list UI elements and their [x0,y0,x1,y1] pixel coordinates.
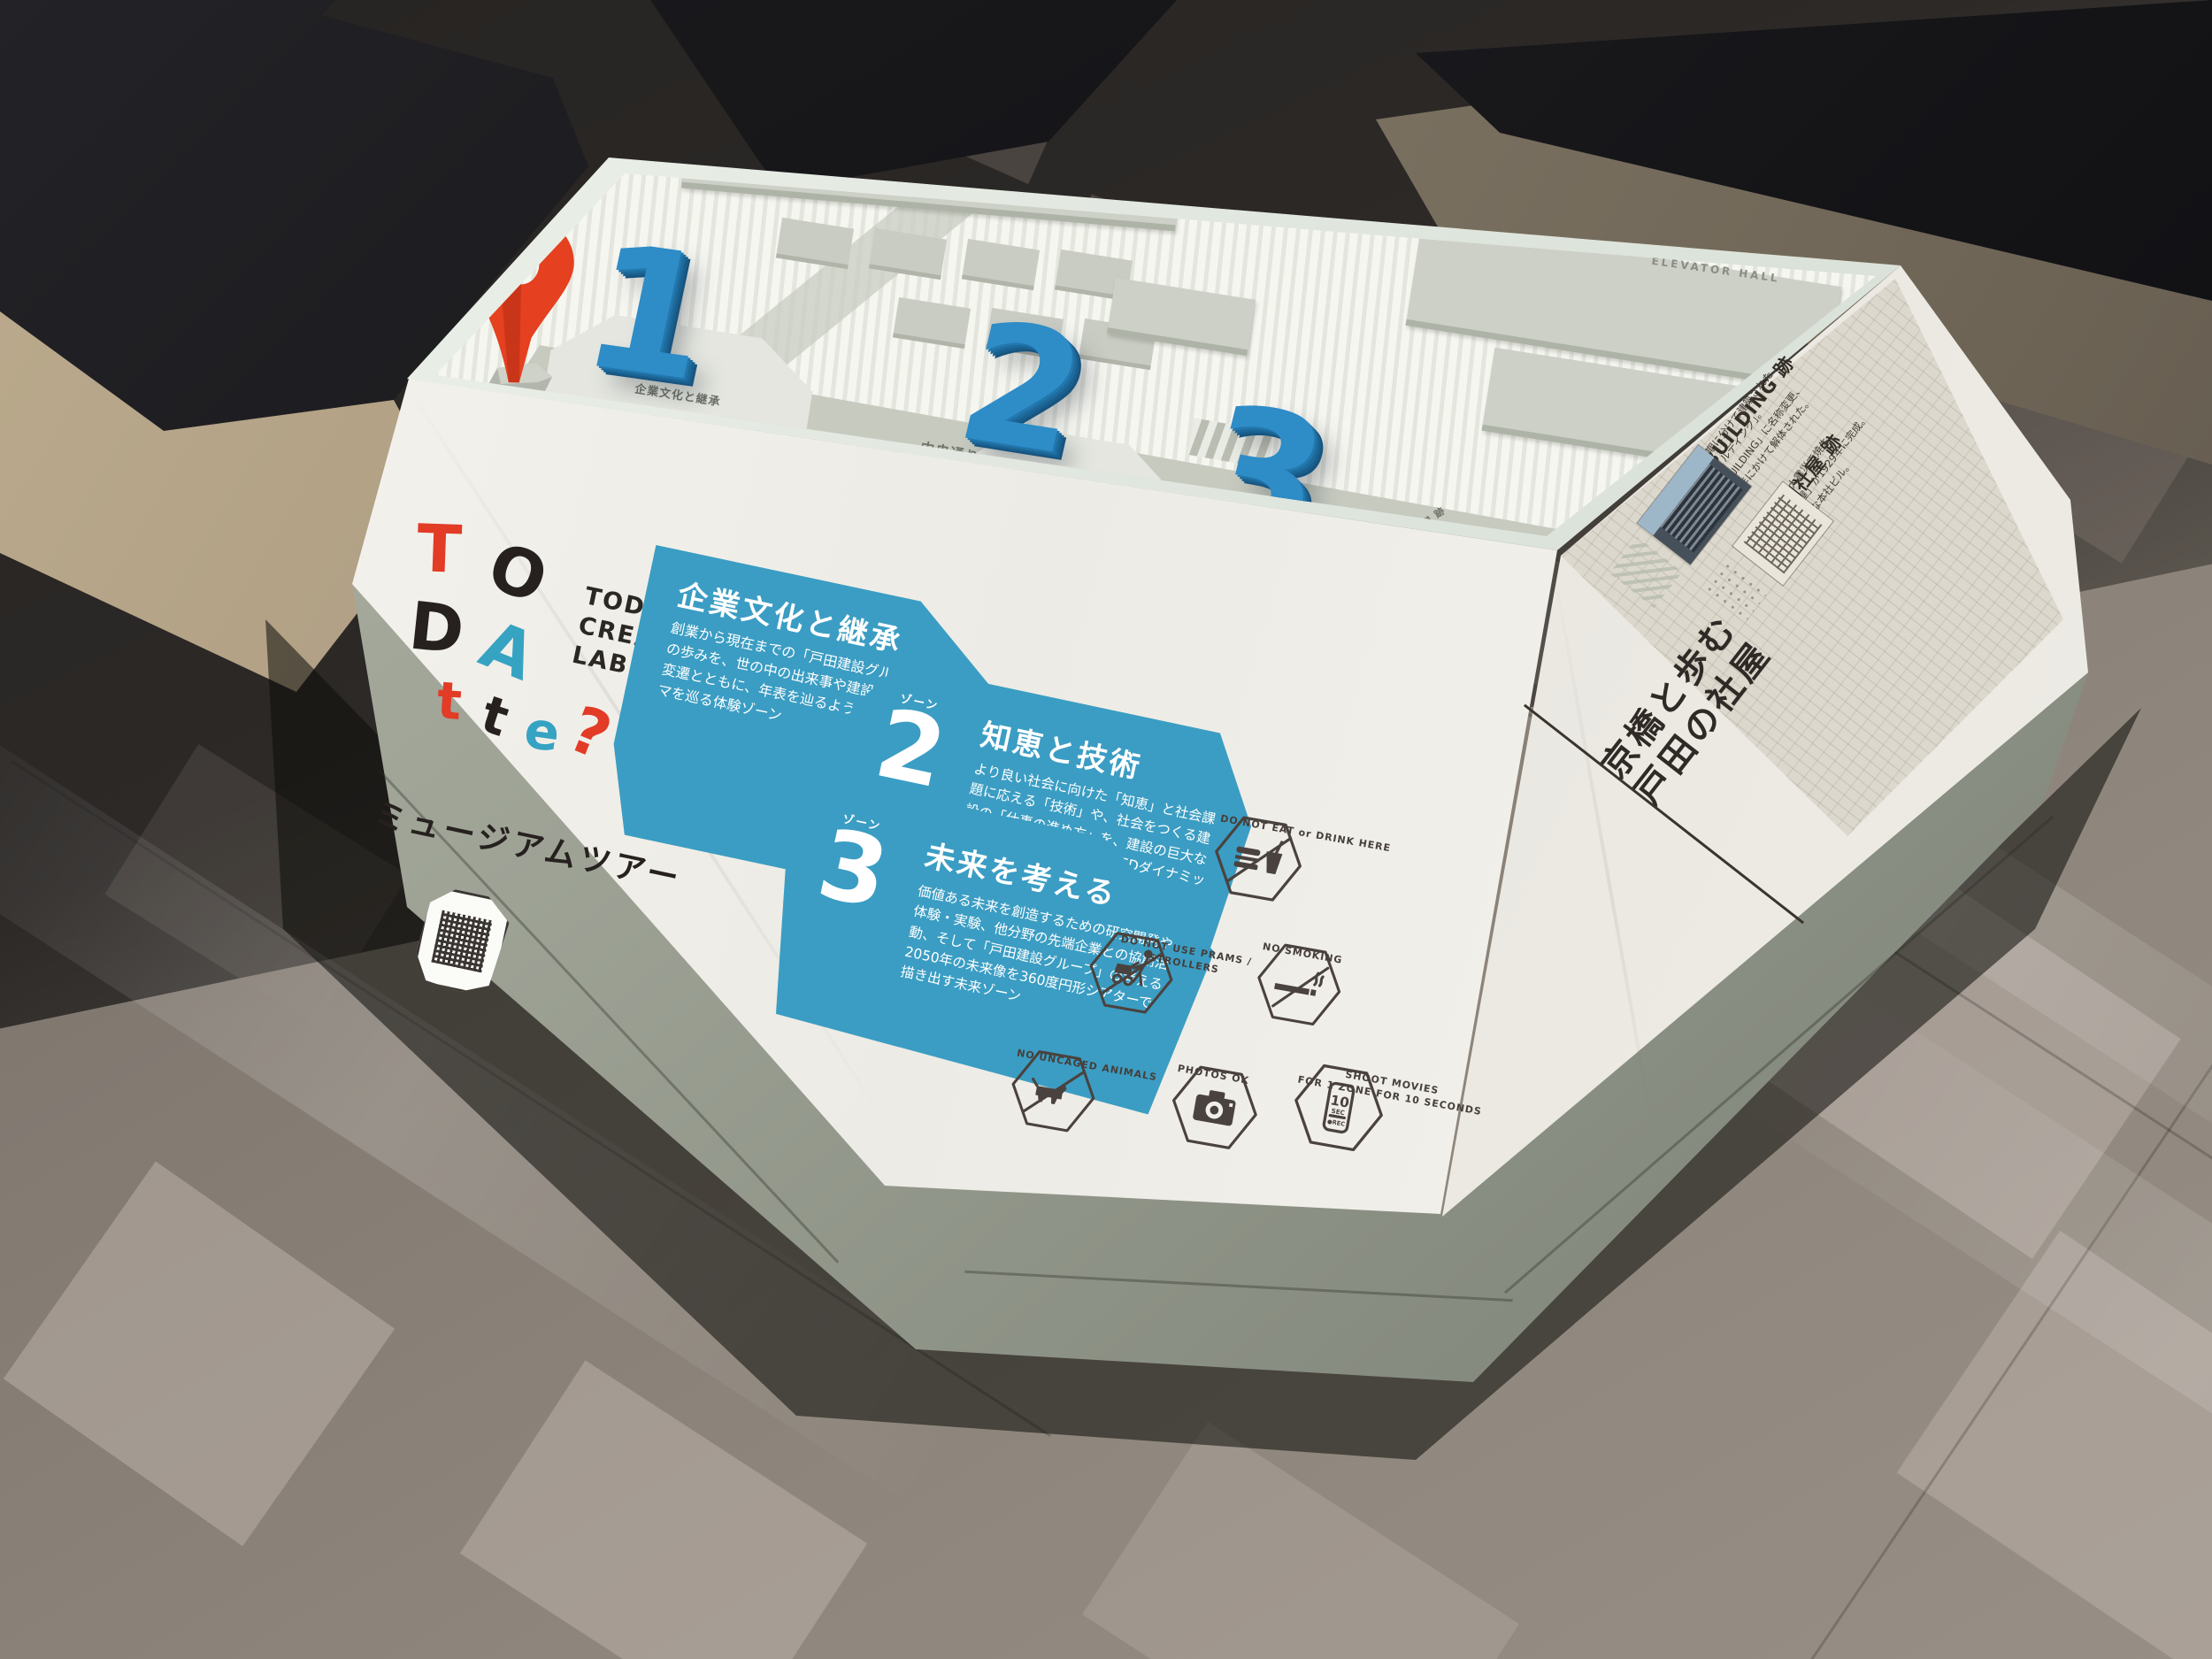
logo-letter: t [435,677,463,725]
phone-rec: ●REC [1326,1118,1345,1127]
logo-letter: ? [562,699,618,766]
logo-letter: T [416,519,463,580]
logo-letter: O [481,536,554,611]
museum-table-photo: 企業文化と継承 知恵と技術 未来を考える 中央通り 旧TODA BUILDING… [0,0,2212,1659]
zone2-number: 2 [870,700,953,798]
logo-letter: e [522,706,563,757]
qr-code-pattern [432,910,493,972]
logo-letter: A [473,614,542,687]
zone3-number: 3 [812,820,895,918]
logo-letter: t [476,690,514,741]
logo-letter: D [406,596,466,661]
